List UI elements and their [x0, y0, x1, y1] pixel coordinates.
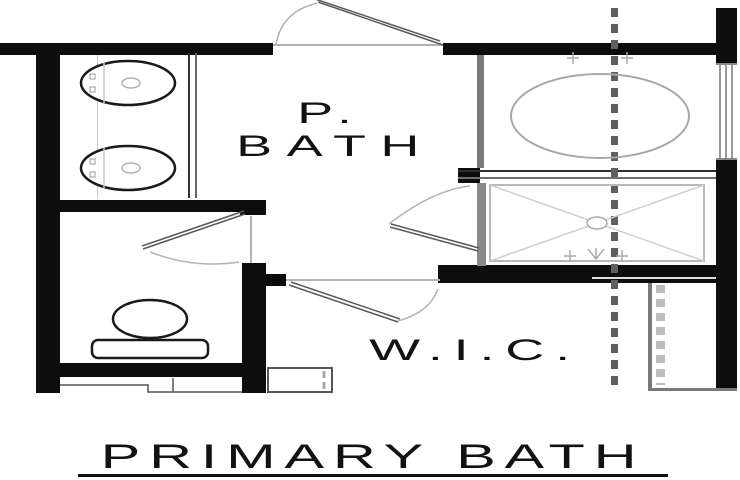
- vanity-backsplash-line: [97, 55, 98, 198]
- window-glazing-line: [719, 65, 721, 158]
- plan-title: PRIMARY BATH: [0, 439, 740, 476]
- floor-plan-canvas: P. BATH W.I.C. PRIMARY BATH: [0, 0, 740, 480]
- top-wall-right: [443, 43, 737, 55]
- centerline-dashed: [611, 8, 618, 388]
- shower-door-swing: [389, 186, 479, 251]
- fixtures-overlay: [0, 0, 740, 480]
- window-glazing-line: [731, 65, 733, 158]
- shower-valve-icon: [564, 248, 628, 262]
- door-leaf: [289, 282, 400, 322]
- left-wall: [36, 43, 60, 393]
- door-leaf: [142, 211, 245, 249]
- linen-shelf-icon: [268, 368, 332, 392]
- door-swing-arc: [150, 252, 239, 264]
- wic-door-swing: [289, 282, 438, 322]
- closet-bottom-line: [648, 388, 737, 391]
- right-wall-upper: [716, 8, 737, 63]
- divider-wall-line-lower: [458, 177, 716, 179]
- entry-opening-header-line: [273, 44, 443, 46]
- toilet-room-top-wall: [58, 200, 240, 212]
- shower-drain-icon: [587, 217, 607, 229]
- room-label-pbath-line2: BATH: [155, 130, 515, 163]
- shower-icon: [490, 185, 704, 262]
- room-label-pbath-line1: P.: [195, 97, 465, 130]
- bathtub-icon: [511, 52, 689, 158]
- shower-bottom-wall: [438, 265, 737, 283]
- toilet-room-corner-block: [240, 200, 266, 215]
- plan-title-underline: [78, 474, 668, 477]
- sink-icon: [81, 61, 175, 105]
- divider-wall-line-upper: [458, 170, 716, 172]
- room-label-wic: W.I.C.: [259, 334, 691, 367]
- wic-opening-header-line: [286, 279, 440, 281]
- toilet-icon: [92, 300, 208, 358]
- entry-door-swing: [276, 0, 443, 45]
- toilet-door-swing: [142, 211, 245, 264]
- toilet-room-bottom-wall: [58, 363, 248, 377]
- toilet-opening-header-line: [250, 216, 252, 263]
- door-leaf: [315, 0, 443, 45]
- wic-door-left-stub: [264, 274, 286, 286]
- door-swing-arc: [389, 186, 470, 224]
- door-swing-arc: [276, 3, 317, 45]
- window-glazing-line: [725, 65, 727, 158]
- door-swing-arc: [398, 289, 438, 321]
- window-icon: [716, 63, 737, 160]
- door-leaf: [390, 224, 479, 251]
- threshold-step-lines: [60, 378, 242, 392]
- shower-glass-panel: [477, 183, 486, 266]
